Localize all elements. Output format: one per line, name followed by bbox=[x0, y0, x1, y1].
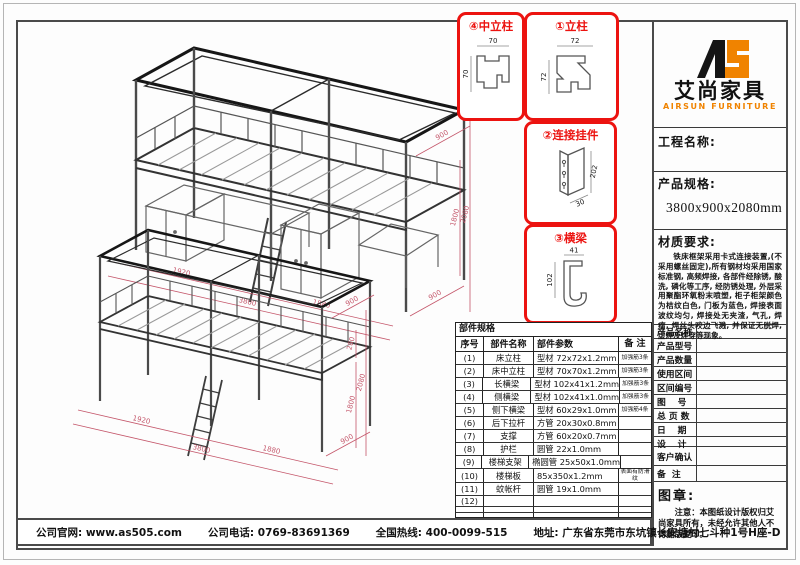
connector-bracket: 202 30 bbox=[534, 143, 608, 209]
cell-remark bbox=[619, 496, 651, 506]
bed-deck bbox=[100, 296, 370, 380]
drawing-sheet: 1920 1880 3800 900 1800 2080 900 bbox=[0, 0, 800, 565]
cell-part-param: 圆管 22x1.0mm bbox=[534, 443, 619, 455]
svg-text:72: 72 bbox=[540, 73, 548, 82]
website-value: www.as505.com bbox=[86, 527, 182, 539]
footer-website: 公司官网: www.as505.com bbox=[36, 525, 182, 540]
col-serial: 序号 bbox=[456, 337, 484, 351]
cell-remark: 加强筋3条 bbox=[620, 378, 651, 390]
cell-part-param bbox=[534, 496, 619, 506]
cell-part-name: 护栏 bbox=[484, 443, 534, 455]
stamp-label: 图章: bbox=[658, 489, 695, 504]
cell-serial: (8) bbox=[456, 443, 484, 455]
info-row-value bbox=[697, 409, 786, 422]
cell-remark bbox=[619, 443, 651, 455]
table-row: (6) 后下拉杆 方管 20x30x0.8mm bbox=[456, 417, 651, 430]
cell-part-param: 85x350x1.2mm bbox=[534, 469, 619, 482]
cell-serial bbox=[456, 513, 484, 517]
svg-text:1920: 1920 bbox=[132, 414, 151, 426]
info-row-value bbox=[697, 367, 786, 380]
table-row: (12) bbox=[456, 496, 651, 507]
customer-confirm-label: 客户确认 bbox=[654, 447, 697, 465]
cell-part-name: 床立柱 bbox=[484, 352, 534, 364]
svg-text:202: 202 bbox=[588, 164, 599, 179]
product-spec-value: 3800x900x2080mm bbox=[666, 200, 782, 216]
table-row: (3) 长横梁 型材 102x41x1.2mm 加强筋3条 bbox=[456, 378, 651, 391]
svg-text:70: 70 bbox=[489, 37, 498, 45]
table-row: (9) 楼梯支架 椭圆管 25x50x1.0mm bbox=[456, 456, 651, 469]
cell-part-name bbox=[484, 507, 534, 511]
svg-text:70: 70 bbox=[462, 70, 470, 79]
mid-post-profile: 70 70 bbox=[463, 34, 519, 106]
cell-remark bbox=[619, 507, 651, 511]
cell-part-name bbox=[484, 496, 534, 506]
info-row-value bbox=[697, 423, 786, 436]
dimension-lines bbox=[73, 295, 374, 484]
info-row-value bbox=[697, 339, 786, 352]
footer-hotline: 全国热线: 400-0099-515 bbox=[376, 525, 508, 540]
cell-part-param: 型材 70x70x1.2mm bbox=[534, 365, 619, 377]
info-row: 产品数量 bbox=[654, 353, 786, 367]
cell-serial: (6) bbox=[456, 417, 484, 429]
info-row-label: 使用区间 bbox=[654, 367, 697, 380]
svg-text:900: 900 bbox=[427, 289, 443, 302]
title-block-column: 艾尚家具 AIRSUN FURNITURE 工程名称: 产品规格: 3800x9… bbox=[652, 20, 786, 546]
table-row: (1) 床立柱 型材 72x72x1.2mm 加强筋3条 bbox=[456, 352, 651, 365]
info-row: 产品型号 bbox=[654, 339, 786, 353]
cell-part-param: 型材 102x41x1.0mm bbox=[531, 391, 620, 403]
parts-spec-table: 部件规格 序号 部件名称 部件参数 备 注 (1) 床立柱 型材 72x72x1… bbox=[455, 322, 652, 518]
cell-part-param: 方管 60x20x0.7mm bbox=[534, 430, 619, 442]
cell-part-name: 支撑 bbox=[484, 430, 534, 442]
material-label: 材质要求: bbox=[658, 233, 782, 250]
address-value: 广东省东莞市东坑镇长安塘村七斗种1号H座-D bbox=[562, 527, 780, 539]
cell-remark bbox=[619, 483, 651, 495]
col-part-name: 部件名称 bbox=[484, 337, 534, 351]
hotline-value: 400-0099-515 bbox=[426, 527, 508, 539]
cell-serial: (5) bbox=[456, 404, 484, 416]
table-row: (2) 床中立柱 型材 70x70x1.2mm 加强筋3条 bbox=[456, 365, 651, 378]
info-row: 日 期 bbox=[654, 423, 786, 437]
info-row: 总 页 数 bbox=[654, 409, 786, 423]
material-requirements-box: 材质要求: 铁床框架采用卡式连接装置,(不采用螺丝固定),所有钢材均采用国家标准… bbox=[654, 230, 786, 325]
info-row: 图 号 bbox=[654, 395, 786, 409]
info-row-label: 区间编号 bbox=[654, 381, 697, 394]
project-name-label: 工程名称: bbox=[658, 135, 716, 149]
cell-part-name: 楼梯板 bbox=[484, 469, 534, 482]
cell-remark: 加强筋3条 bbox=[619, 352, 651, 364]
cell-part-param: 圆管 19x1.0mm bbox=[534, 483, 619, 495]
svg-text:2080: 2080 bbox=[459, 205, 471, 224]
brand-name-en: AIRSUN FURNITURE bbox=[663, 102, 777, 111]
parts-table-body: (1) 床立柱 型材 72x72x1.2mm 加强筋3条 (2) 床中立柱 型材… bbox=[456, 352, 651, 517]
post-profile: 72 72 bbox=[533, 34, 611, 106]
callout-beam: ③横梁 41 102 bbox=[524, 224, 617, 324]
material-text: 铁床框架采用卡式连接装置,(不采用螺丝固定),所有钢材均采用国家标准钢, 高频焊… bbox=[658, 252, 782, 341]
brand-name-cn: 艾尚家具 bbox=[674, 80, 766, 102]
table-row: (8) 护栏 圆管 22x1.0mm bbox=[456, 443, 651, 456]
svg-text:102: 102 bbox=[546, 273, 554, 286]
cell-serial: (12) bbox=[456, 496, 484, 506]
phone-value: 0769-83691369 bbox=[258, 527, 350, 539]
col-part-param: 部件参数 bbox=[534, 337, 619, 351]
callout-connector: ②连接挂件 202 30 bbox=[524, 121, 617, 225]
product-spec-box: 产品规格: 3800x900x2080mm bbox=[654, 172, 786, 230]
cell-remark: 加强筋3条 bbox=[620, 391, 651, 403]
cell-part-name bbox=[484, 513, 534, 517]
cell-part-param: 型材 102x41x1.2mm bbox=[531, 378, 620, 390]
cell-part-name: 侧下横梁 bbox=[484, 404, 534, 416]
col-remark: 备 注 bbox=[619, 337, 651, 351]
cell-part-name: 蚊帐杆 bbox=[484, 483, 534, 495]
table-row: (4) 侧横梁 型材 102x41x1.0mm 加强筋3条 bbox=[456, 391, 651, 404]
cell-serial: (10) bbox=[456, 469, 484, 482]
footer-contact-bar: 公司官网: www.as505.com 公司电话: 0769-83691369 … bbox=[16, 518, 652, 546]
cell-serial: (4) bbox=[456, 391, 483, 403]
table-row: (5) 侧下横梁 型材 60x29x1.0mm 加强筋4条 bbox=[456, 404, 651, 417]
info-rows: 产品名称 产品型号 产品数量 使用区间 区间编号 图 号 总 页 数 bbox=[654, 325, 786, 446]
svg-text:72: 72 bbox=[570, 37, 579, 45]
info-row-label: 图 号 bbox=[654, 395, 697, 408]
cell-part-name: 楼梯支架 bbox=[482, 456, 529, 468]
svg-text:1800: 1800 bbox=[345, 395, 357, 414]
cell-remark: 表面有防滑纹 bbox=[619, 469, 651, 482]
cell-remark: 加强筋3条 bbox=[619, 365, 651, 377]
svg-text:900: 900 bbox=[344, 295, 360, 308]
cell-remark bbox=[619, 513, 651, 517]
svg-text:280: 280 bbox=[345, 336, 356, 351]
remark-row: 备 注 bbox=[654, 466, 786, 482]
cell-part-param: 椭圆管 25x50x1.0mm bbox=[529, 456, 621, 468]
callout-post: ①立柱 72 72 bbox=[524, 12, 619, 121]
cell-remark: 加强筋4条 bbox=[619, 404, 651, 416]
cell-remark bbox=[621, 456, 651, 468]
parts-table-header: 序号 部件名称 部件参数 备 注 bbox=[456, 337, 651, 352]
cell-part-name: 后下拉杆 bbox=[484, 417, 534, 429]
info-row-value bbox=[697, 353, 786, 366]
callout-title: ④中立柱 bbox=[469, 18, 513, 34]
table-row: (11) 蚊帐杆 圆管 19x1.0mm bbox=[456, 483, 651, 496]
callout-title: ①立柱 bbox=[555, 18, 588, 34]
cell-part-param bbox=[534, 507, 619, 511]
cell-part-param: 型材 60x29x1.0mm bbox=[534, 404, 619, 416]
footer-phone: 公司电话: 0769-83691369 bbox=[208, 525, 350, 540]
cell-part-param: 型材 72x72x1.2mm bbox=[534, 352, 619, 364]
product-spec-label: 产品规格: bbox=[658, 175, 782, 192]
parts-table-title: 部件规格 bbox=[456, 323, 651, 337]
cell-serial: (2) bbox=[456, 365, 484, 377]
beam-profile: 41 102 bbox=[534, 246, 608, 308]
cell-remark bbox=[619, 417, 651, 429]
svg-text:900: 900 bbox=[434, 129, 450, 142]
cell-serial: (11) bbox=[456, 483, 484, 495]
airsun-logo-icon bbox=[685, 36, 755, 80]
svg-text:2080: 2080 bbox=[355, 373, 367, 392]
cell-part-name: 侧横梁 bbox=[483, 391, 531, 403]
info-row-value bbox=[697, 381, 786, 394]
hotline-label: 全国热线: bbox=[376, 527, 422, 539]
website-label: 公司官网: bbox=[36, 527, 82, 539]
callout-title: ③横梁 bbox=[554, 230, 587, 246]
cell-part-param bbox=[534, 513, 619, 517]
table-row bbox=[456, 513, 651, 517]
callout-mid-post: ④中立柱 70 70 bbox=[457, 12, 525, 121]
table-row: (10) 楼梯板 85x350x1.2mm 表面有防滑纹 bbox=[456, 469, 651, 483]
info-row-label: 产品数量 bbox=[654, 353, 697, 366]
brand-block: 艾尚家具 AIRSUN FURNITURE bbox=[654, 20, 786, 128]
cell-serial: (1) bbox=[456, 352, 484, 364]
footer-address: 地址: 广东省东莞市东坑镇长安塘村七斗种1号H座-D bbox=[533, 525, 780, 540]
info-row-label: 总 页 数 bbox=[654, 409, 697, 422]
address-label: 地址: bbox=[533, 527, 558, 539]
cell-remark bbox=[619, 430, 651, 442]
cell-part-name: 床中立柱 bbox=[484, 365, 534, 377]
svg-text:1880: 1880 bbox=[262, 444, 281, 456]
info-row: 区间编号 bbox=[654, 381, 786, 395]
cell-serial bbox=[456, 507, 484, 511]
svg-text:30: 30 bbox=[574, 198, 585, 209]
cell-part-param: 方管 20x30x0.8mm bbox=[534, 417, 619, 429]
cell-serial: (9) bbox=[456, 456, 482, 468]
phone-label: 公司电话: bbox=[208, 527, 254, 539]
cell-part-name: 长横梁 bbox=[483, 378, 531, 390]
table-row: (7) 支撑 方管 60x20x0.7mm bbox=[456, 430, 651, 443]
info-row-label: 产品型号 bbox=[654, 339, 697, 352]
bottom-isometric-view: 1920 1880 3800 900 280 1800 2080 900 bbox=[8, 198, 380, 520]
info-row-label: 日 期 bbox=[654, 423, 697, 436]
customer-confirm-row: 客户确认 bbox=[654, 446, 786, 466]
remark-label: 备 注 bbox=[654, 466, 697, 481]
project-name-box: 工程名称: bbox=[654, 128, 786, 172]
cell-serial: (7) bbox=[456, 430, 484, 442]
info-row: 使用区间 bbox=[654, 367, 786, 381]
info-row-value bbox=[697, 395, 786, 408]
svg-text:900: 900 bbox=[339, 433, 355, 446]
cell-serial: (3) bbox=[456, 378, 483, 390]
svg-text:41: 41 bbox=[569, 247, 578, 255]
callout-title: ②连接挂件 bbox=[543, 127, 599, 143]
